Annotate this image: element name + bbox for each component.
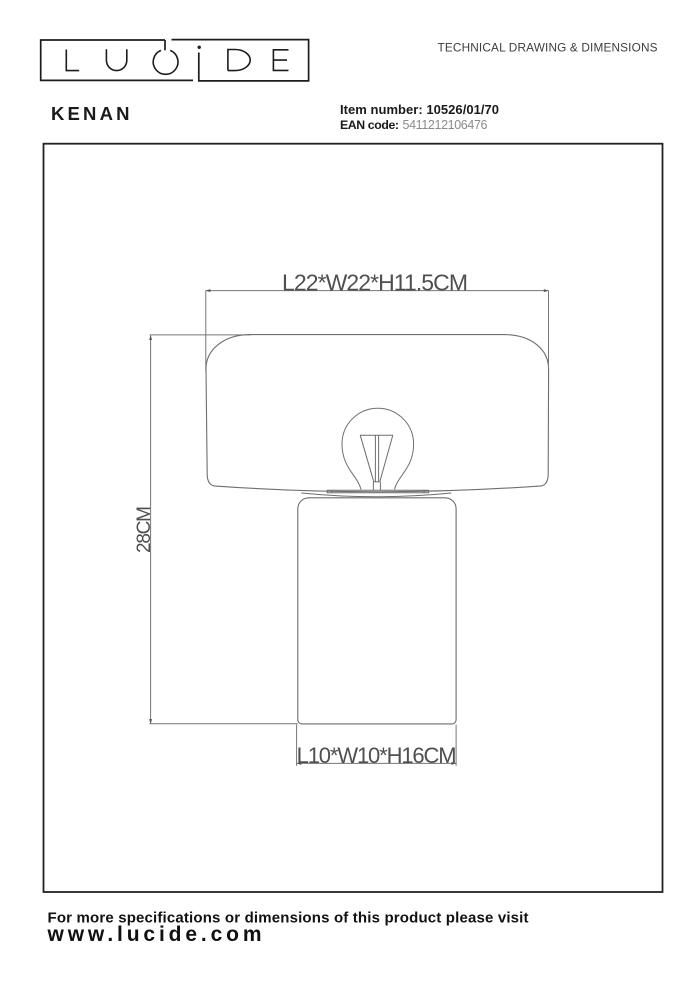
svg-text:TECHNICAL DRAWING & DIMENSIONS: TECHNICAL DRAWING & DIMENSIONS [438,41,658,55]
svg-text:Item number: 10526/01/70: Item number: 10526/01/70 [340,102,499,117]
svg-text:www.lucide.com: www.lucide.com [47,923,262,946]
svg-text:28CM: 28CM [134,506,155,553]
svg-text:KENAN: KENAN [51,103,130,124]
svg-text:EAN code:: EAN code: [340,118,399,132]
svg-text:L10*W10*H16CM: L10*W10*H16CM [297,743,457,768]
svg-text:L22*W22*H11.5CM: L22*W22*H11.5CM [282,269,468,295]
svg-text:5411212106476: 5411212106476 [403,118,488,132]
